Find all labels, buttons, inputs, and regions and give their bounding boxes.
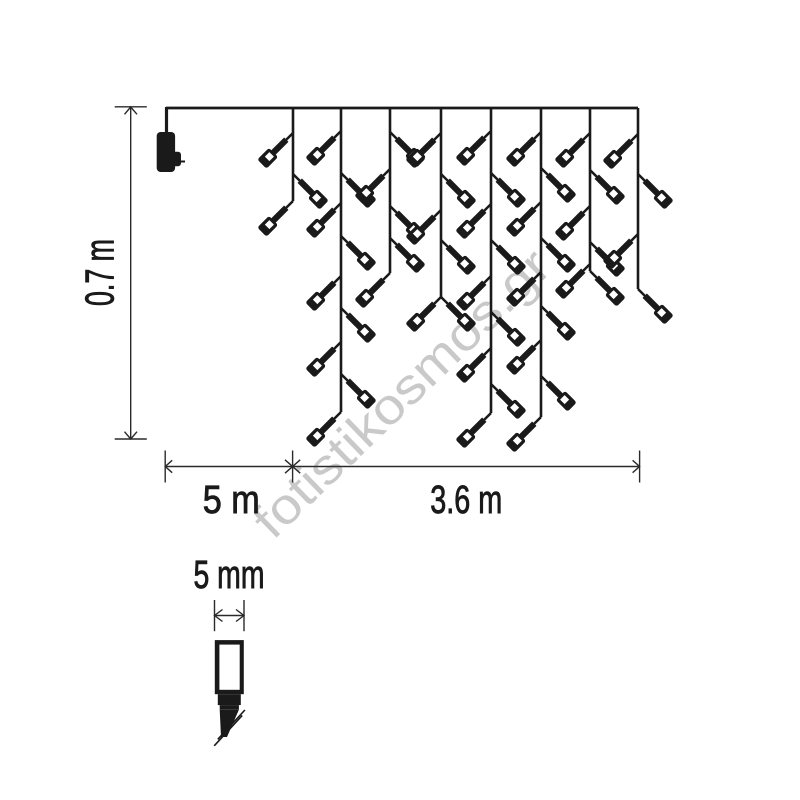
svg-text:0.7 m: 0.7 m — [77, 239, 123, 306]
svg-text:fotistikosmos.gr: fotistikosmos.gr — [242, 238, 561, 549]
svg-text:5 m: 5 m — [203, 478, 260, 522]
svg-text:3.6 m: 3.6 m — [430, 478, 502, 522]
svg-text:5 mm: 5 mm — [194, 553, 265, 597]
